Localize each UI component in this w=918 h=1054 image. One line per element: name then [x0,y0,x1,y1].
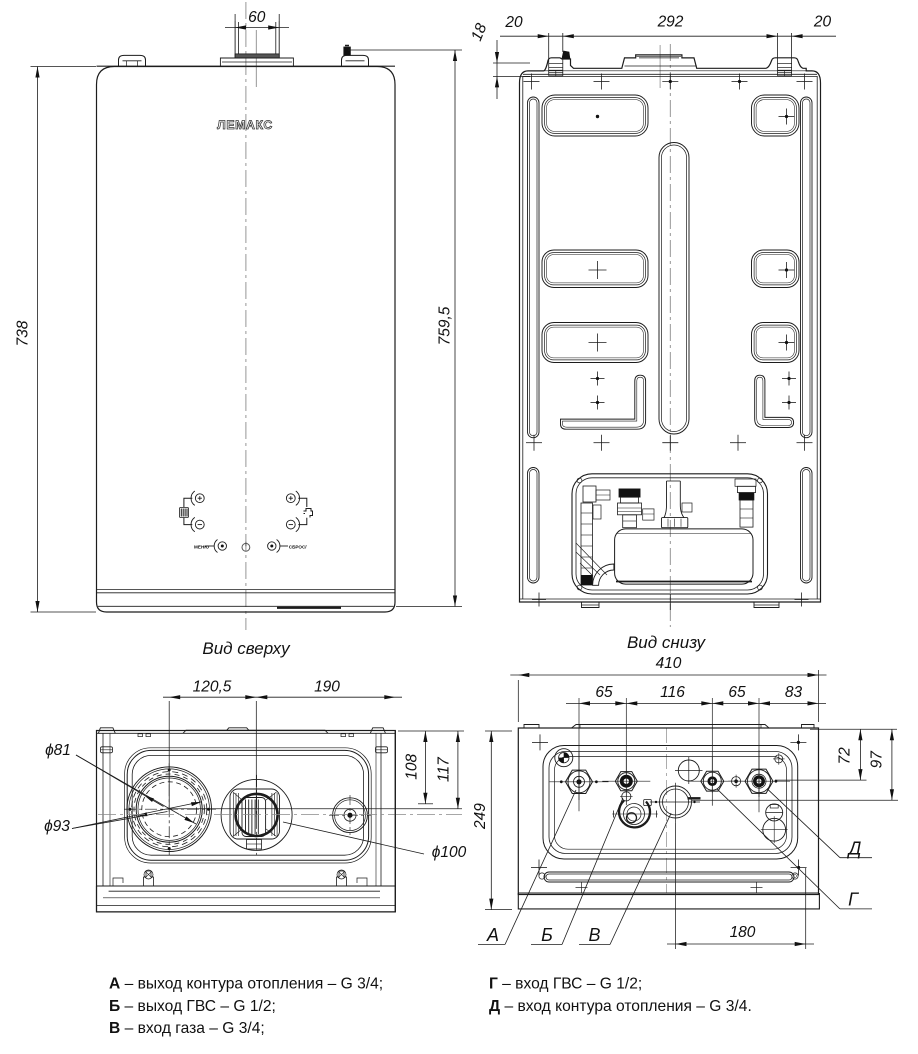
svg-text:65: 65 [595,684,613,701]
svg-text:Б – выход ГВС – G 1/2;: Б – выход ГВС – G 1/2; [109,998,276,1015]
svg-text:738: 738 [15,320,32,346]
svg-text:Д – вход контура отопления – G: Д – вход контура отопления – G 3/4. [489,998,752,1015]
svg-text:117: 117 [436,756,453,782]
svg-text:116: 116 [660,684,685,701]
svg-text:Б: Б [541,925,553,945]
svg-text:ϕ93: ϕ93 [44,818,70,835]
svg-text:97: 97 [869,750,886,769]
svg-text:108: 108 [404,753,421,779]
svg-text:В: В [588,925,600,945]
svg-text:Вид снизу: Вид снизу [627,633,707,652]
svg-text:СБРОС/: СБРОС/ [289,544,308,549]
svg-text:292: 292 [657,14,684,31]
svg-text:20: 20 [504,14,523,31]
svg-text:ЛЕМАКС: ЛЕМАКС [217,118,273,132]
svg-text:20: 20 [813,14,832,31]
svg-text:ϕ81: ϕ81 [45,742,71,759]
svg-text:83: 83 [785,684,803,701]
svg-text:65: 65 [728,684,746,701]
svg-text:120,5: 120,5 [193,679,232,696]
svg-text:410: 410 [656,655,682,672]
svg-text:ϕ100: ϕ100 [432,844,467,861]
svg-text:Г: Г [848,890,859,910]
svg-text:Г – вход ГВС – G 1/2;: Г – вход ГВС – G 1/2; [489,976,642,993]
svg-text:190: 190 [314,679,340,696]
svg-text:249: 249 [472,803,489,830]
svg-text:Вид сверху: Вид сверху [202,639,291,658]
svg-text:Д: Д [847,839,862,859]
svg-text:60: 60 [248,9,266,26]
svg-text:В – вход газа – G 3/4;: В – вход газа – G 3/4; [109,1020,265,1037]
svg-text:МЕНЮ: МЕНЮ [194,544,209,549]
svg-text:А – выход контура отопления –: А – выход контура отопления – G 3/4; [109,976,383,993]
svg-text:72: 72 [837,747,854,765]
svg-text:180: 180 [730,924,756,941]
svg-text:759,5: 759,5 [437,306,454,345]
svg-text:А: А [486,925,499,945]
